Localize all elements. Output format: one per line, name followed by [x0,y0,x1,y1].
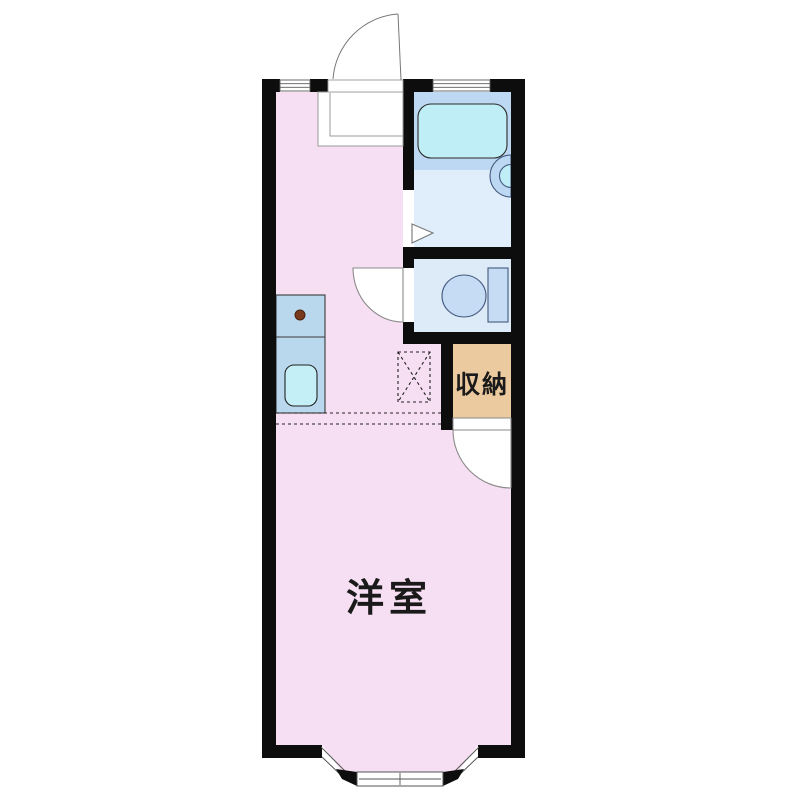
bathtub [418,104,507,158]
wall-bottom [478,745,525,758]
wall-right [511,79,525,758]
stove-burner [295,310,305,320]
wall-top [490,79,525,92]
wall-interior [403,247,414,268]
toilet-doorway [403,268,414,322]
top-window-left [280,80,310,91]
wall-top [262,79,280,92]
wall-top [310,79,328,92]
western-room-label: 洋室 [346,576,432,620]
floor-plan-canvas: 洋室 収納 [0,0,800,800]
storage-label: 収納 [455,370,509,399]
wall-top [403,79,433,92]
kitchen-sink [285,365,317,406]
bathroom-window [433,80,490,91]
toilet-bowl [442,275,486,317]
entrance [318,14,403,146]
entrance-threshold [328,80,403,92]
bathroom [414,92,511,247]
wall-bottom [262,745,322,758]
wall-storage-left [441,344,453,430]
wall-bath-toilet [414,247,511,259]
entrance-door-swing [333,14,401,80]
wall-left [262,79,276,758]
storage-door [453,418,511,430]
wall-interior [403,92,414,190]
entrance-step [318,92,403,146]
toilet-tank [488,268,508,322]
kitchen [276,295,325,413]
wall-toilet-bottom [403,332,511,344]
toilet-room [414,259,511,332]
bay-window-sash [357,772,443,786]
floor-plan: 洋室 収納 [0,0,800,800]
